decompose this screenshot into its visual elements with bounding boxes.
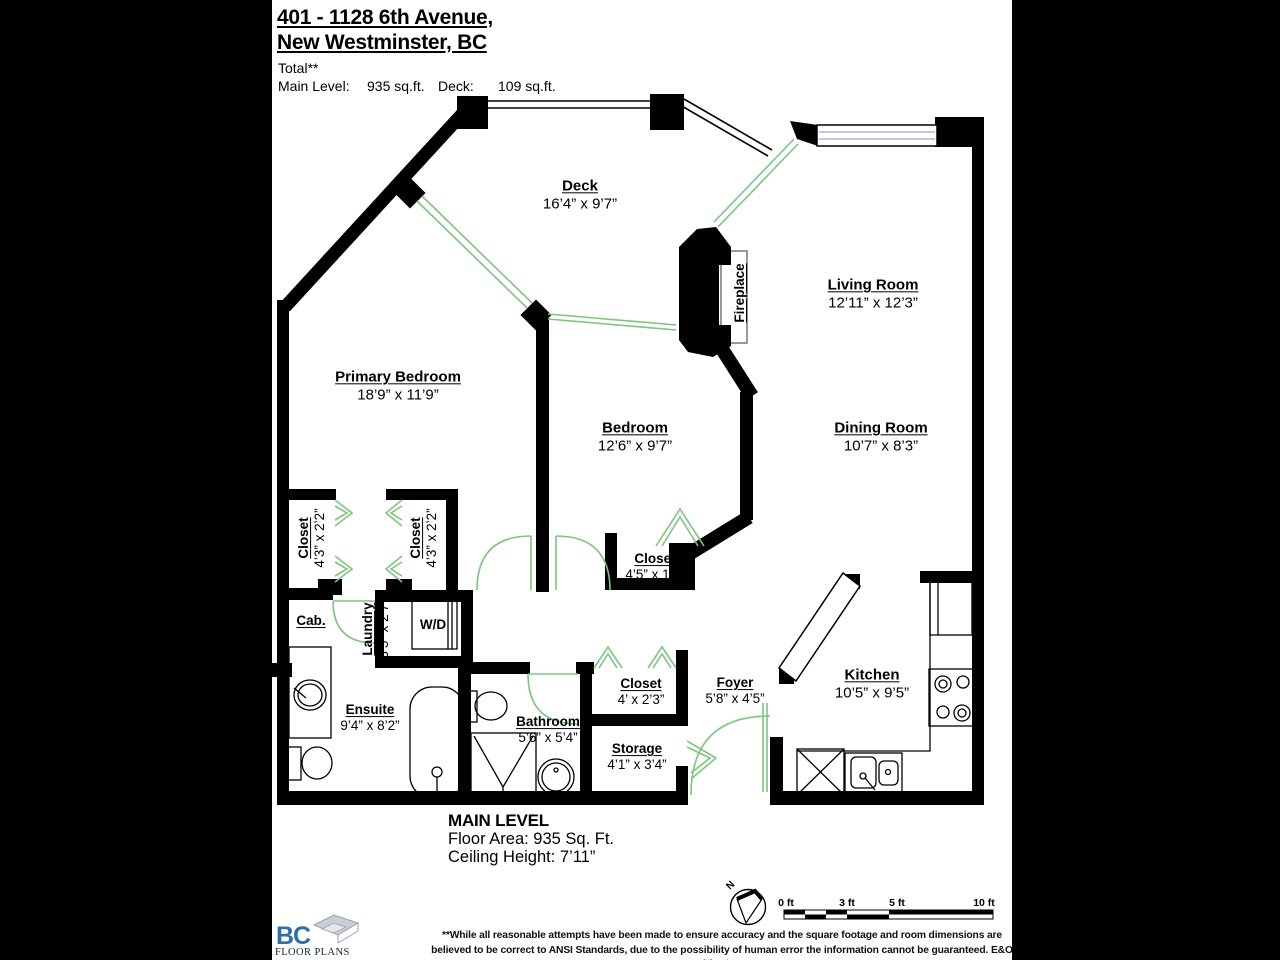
bar-counter <box>779 573 860 681</box>
room-name: Cab. <box>296 613 325 629</box>
sink-icon <box>294 680 326 710</box>
room-name: Bedroom <box>598 419 672 437</box>
logo-secondary: FLOOR PLANS <box>275 947 350 958</box>
room-dims: 12’11” x 12’3” <box>828 294 919 312</box>
room-name: Laundry <box>360 599 376 658</box>
room-name: Closet <box>296 508 312 567</box>
deck-label: Deck: <box>438 78 474 94</box>
scale-label-10: 10 ft <box>973 897 995 909</box>
room-label-foyer: Foyer 5’8” x 4’5” <box>705 675 764 707</box>
stove-icon <box>929 669 973 726</box>
address-line2: New Westminster, BC <box>277 30 493 55</box>
address-line1: 401 - 1128 6th Avenue, <box>277 5 493 30</box>
kitchen-sink-icon <box>845 753 902 792</box>
main-level-label: Main Level: <box>278 78 350 94</box>
room-dims: 18’9” x 11’9” <box>335 386 461 404</box>
page-title: 401 - 1128 6th Avenue, New Westminster, … <box>277 5 493 55</box>
room-name: Closet <box>625 551 684 567</box>
room-name: Foyer <box>705 675 764 691</box>
room-dims: 5’6” x 5’4” <box>516 730 580 746</box>
room-name: Fireplace <box>732 263 748 322</box>
plan-sheet: N 0 ft 3 ft 5 ft 10 ft 401 - 1128 6 <box>272 0 1012 960</box>
room-label-living-room: Living Room 12’11” x 12’3” <box>828 276 919 311</box>
bc-floor-plans-logo: BC FLOOR PLANS <box>274 914 374 960</box>
floor-plan-svg: N 0 ft 3 ft 5 ft 10 ft <box>272 0 1012 960</box>
room-label-fireplace: Fireplace <box>732 263 748 322</box>
room-label-dining-room: Dining Room 10’7” x 8’3” <box>834 419 927 454</box>
total-label: Total** <box>278 60 318 76</box>
room-label-deck: Deck 16’4” x 9’7” <box>543 177 617 212</box>
room-label-bedroom: Bedroom 12’6” x 9’7” <box>598 419 672 454</box>
scale-label-3: 3 ft <box>839 897 855 909</box>
room-name: Dining Room <box>834 419 927 437</box>
room-name: Closet <box>408 508 424 567</box>
room-dims: 16’4” x 9’7” <box>543 195 617 213</box>
floor-area: Floor Area: 935 Sq. Ft. <box>448 830 614 848</box>
ceiling-height: Ceiling Height: 7’11” <box>448 848 614 866</box>
room-label-bathroom: Bathroom 5’6” x 5’4” <box>516 714 580 746</box>
room-name: Storage <box>607 741 666 757</box>
room-name: Closet <box>618 676 665 692</box>
level-title: MAIN LEVEL <box>448 811 614 830</box>
area-summary: Main Level: 935 sq.ft. Deck: 109 sq.ft. <box>278 78 678 96</box>
room-label-ensuite: Ensuite 9’4” x 8’2” <box>340 702 399 734</box>
vanity-counter <box>289 647 331 738</box>
room-label-cab: Cab. <box>296 613 325 629</box>
scale-bar: 0 ft 3 ft 5 ft 10 ft <box>778 897 995 919</box>
room-name: Primary Bedroom <box>335 368 461 386</box>
scale-label-5: 5 ft <box>889 897 905 909</box>
deck-railing <box>488 99 772 156</box>
room-label-storage: Storage 4’1” x 3’4” <box>607 741 666 773</box>
bathtub-icon <box>410 687 464 798</box>
room-dims: 4’5” x 1’9” <box>625 567 684 583</box>
compass-icon: N <box>724 879 765 924</box>
window <box>817 125 937 146</box>
room-dims: 5’8” x 4’5” <box>705 691 764 707</box>
toilet-icon <box>465 691 507 722</box>
toilet-icon <box>288 747 332 780</box>
scale-label-0: 0 ft <box>778 897 794 909</box>
room-label-hall-closet: Closet 4’ x 2’3” <box>618 676 665 708</box>
room-name: Ensuite <box>340 702 399 718</box>
room-dims: 10’7” x 8’3” <box>834 437 927 455</box>
room-dims: 10’5” x 9’5” <box>835 684 909 702</box>
room-label-laundry: Laundry 3’5” x 2’7” <box>360 599 392 658</box>
fridge-icon <box>930 579 972 635</box>
room-name: Deck <box>543 177 617 195</box>
room-dims: 4’1” x 3’4” <box>607 757 666 773</box>
room-dims: 4’ x 2’3” <box>618 692 665 708</box>
sink-icon <box>538 759 574 795</box>
compass-north-label: N <box>724 879 737 892</box>
room-label-closet1: Closet 4’3” x 2’2” <box>296 508 328 567</box>
room-dims: 4’3” x 2’2” <box>424 508 440 567</box>
floorplan-page: N 0 ft 3 ft 5 ft 10 ft 401 - 1128 6 <box>0 0 1280 960</box>
room-label-bedroom-closet: Closet 4’5” x 1’9” <box>625 551 684 583</box>
room-label-wd: W/D <box>420 617 446 633</box>
room-label-closet2: Closet 4’3” x 2’2” <box>408 508 440 567</box>
room-name: Living Room <box>828 276 919 294</box>
room-name: W/D <box>420 617 446 633</box>
main-level-value: 935 sq.ft. <box>367 78 425 94</box>
level-summary: MAIN LEVEL Floor Area: 935 Sq. Ft. Ceili… <box>448 811 614 866</box>
room-name: Bathroom <box>516 714 580 730</box>
room-dims: 9’4” x 8’2” <box>340 718 399 734</box>
room-label-primary-bedroom: Primary Bedroom 18’9” x 11’9” <box>335 368 461 403</box>
room-name: Kitchen <box>835 666 909 684</box>
deck-value: 109 sq.ft. <box>498 78 556 94</box>
room-label-kitchen: Kitchen 10’5” x 9’5” <box>835 666 909 701</box>
dishwasher-icon <box>797 749 844 795</box>
room-dims: 12’6” x 9’7” <box>598 437 672 455</box>
disclaimer-text: **While all reasonable attempts have bee… <box>430 929 1014 960</box>
room-dims: 3’5” x 2’7” <box>376 599 392 658</box>
room-dims: 4’3” x 2’2” <box>312 508 328 567</box>
